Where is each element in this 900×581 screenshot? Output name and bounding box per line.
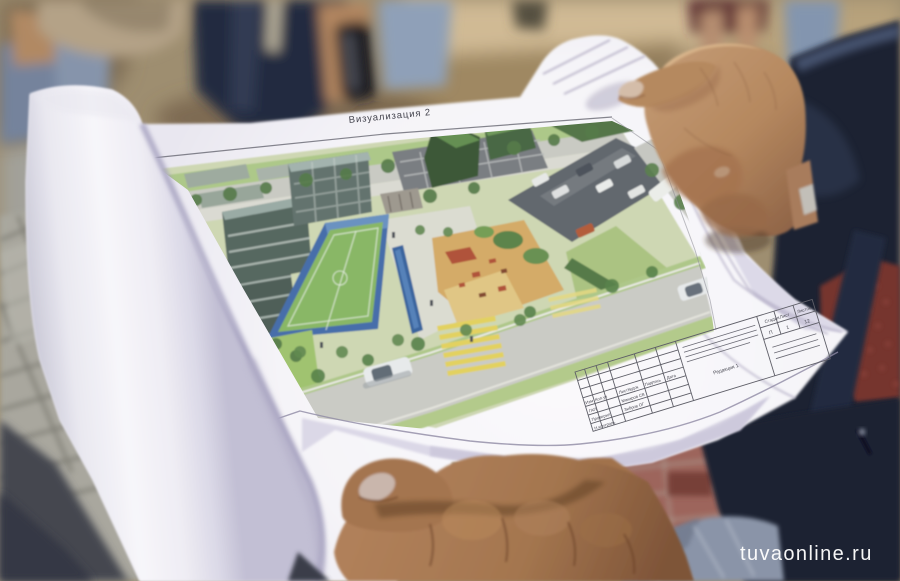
svg-text:tuvaonline.ru: tuvaonline.ru (740, 543, 873, 565)
